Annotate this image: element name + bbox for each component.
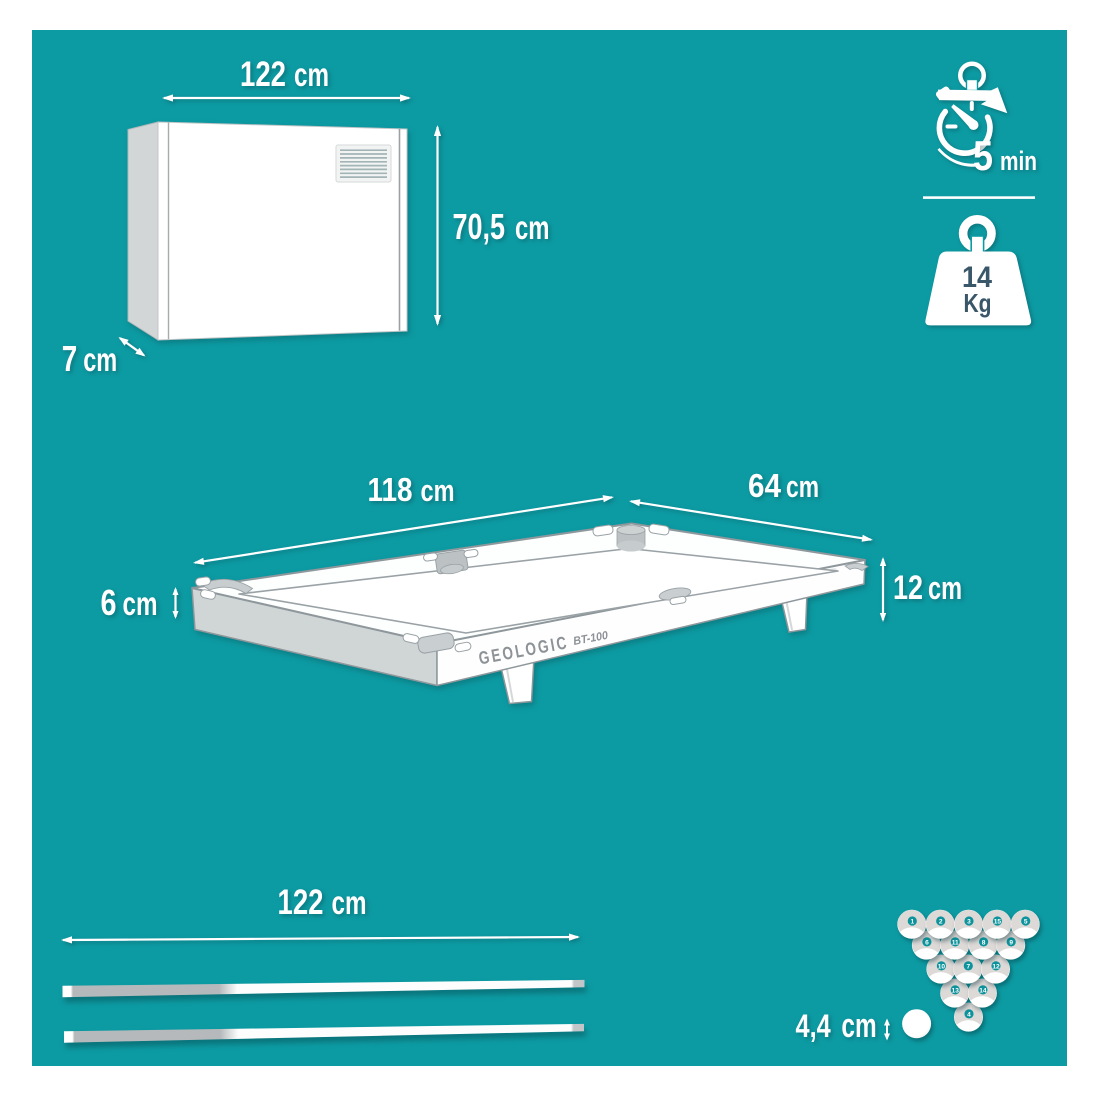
svg-text:122: 122 [278,883,324,922]
svg-text:6: 6 [925,939,929,946]
svg-text:118: 118 [368,471,413,508]
svg-text:cm: cm [786,469,819,504]
svg-text:cm: cm [928,570,962,606]
svg-text:4,4: 4,4 [796,1008,831,1044]
svg-text:5: 5 [1024,918,1028,925]
svg-text:14: 14 [979,987,987,994]
svg-text:4: 4 [967,1011,971,1018]
svg-text:Kg: Kg [964,288,992,318]
svg-text:7: 7 [966,963,970,970]
svg-text:7: 7 [62,338,78,379]
svg-text:cm: cm [294,56,329,93]
svg-text:12: 12 [893,569,923,607]
svg-text:10: 10 [938,963,946,970]
svg-text:9: 9 [1009,939,1013,946]
svg-text:3: 3 [967,918,971,925]
svg-text:11: 11 [952,939,959,946]
svg-text:13: 13 [952,987,960,994]
svg-text:cm: cm [841,1007,876,1045]
svg-text:64: 64 [748,467,782,504]
svg-text:cm: cm [421,473,455,508]
svg-text:cm: cm [332,884,367,921]
svg-text:cm: cm [83,341,117,378]
svg-text:12: 12 [992,963,1000,970]
svg-text:2: 2 [939,918,943,925]
svg-text:8: 8 [982,939,986,946]
svg-text:122: 122 [240,55,286,94]
svg-text:15: 15 [994,918,1002,925]
svg-text:cm: cm [515,209,550,246]
svg-text:6: 6 [101,582,117,623]
svg-text:min: min [1000,146,1037,176]
svg-text:1: 1 [910,918,914,925]
svg-text:70,5: 70,5 [453,206,506,247]
svg-text:cm: cm [123,585,158,622]
svg-text:5: 5 [973,132,993,179]
